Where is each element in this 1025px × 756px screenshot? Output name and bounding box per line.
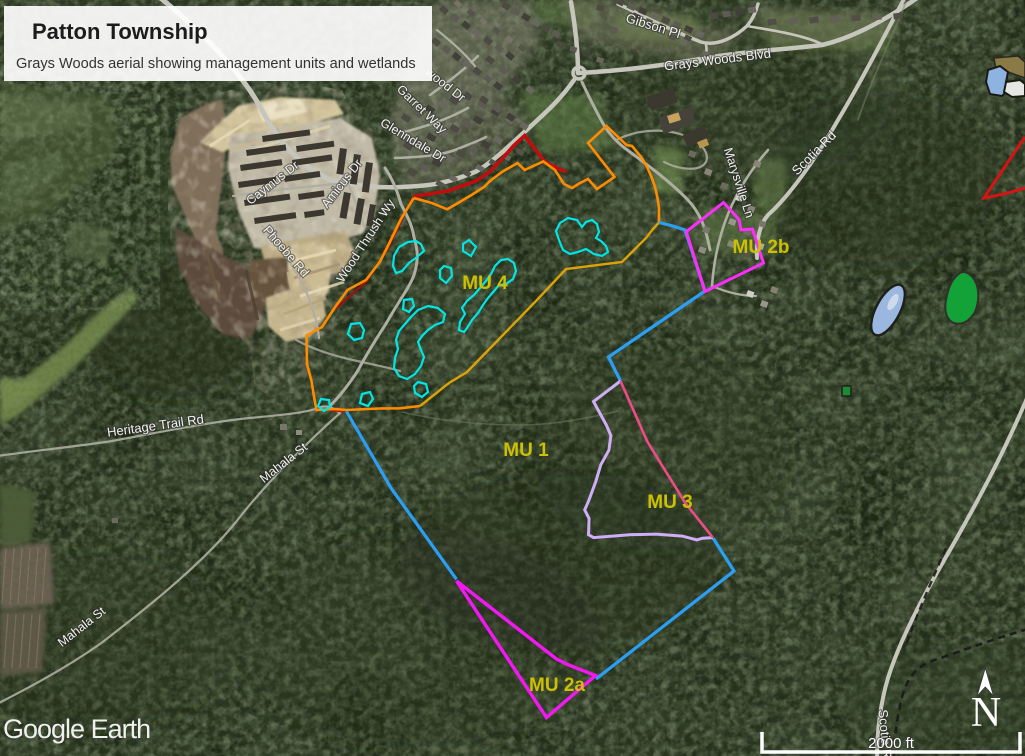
svg-text:Patton Township: Patton Township (32, 19, 208, 44)
svg-text:MU 3: MU 3 (647, 492, 692, 513)
svg-text:Grays Woods aerial showing man: Grays Woods aerial showing management un… (16, 56, 416, 72)
svg-text:2000 ft: 2000 ft (868, 735, 915, 752)
svg-text:MU 2b: MU 2b (733, 237, 790, 258)
svg-text:MU 2a: MU 2a (529, 675, 585, 696)
svg-text:MU 1: MU 1 (503, 440, 549, 461)
svg-text:MU 4: MU 4 (462, 273, 508, 294)
svg-text:N: N (971, 690, 1001, 736)
svg-text:Google Earth: Google Earth (3, 714, 150, 744)
